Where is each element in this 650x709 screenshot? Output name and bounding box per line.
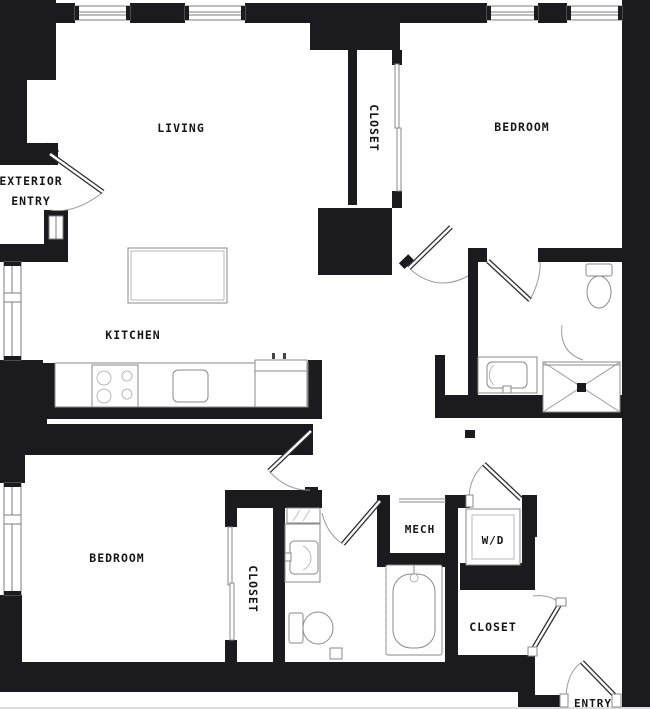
bathroom-bottom-door xyxy=(322,501,380,544)
living-window-2 xyxy=(185,6,245,20)
entry-label: ENTRY xyxy=(574,697,612,709)
mech-label: MECH xyxy=(405,523,436,536)
exterior-entry-label-line2: ENTRY xyxy=(11,194,51,208)
entry-closet-door xyxy=(528,596,566,656)
living-window-1 xyxy=(75,6,130,20)
mech-opening xyxy=(399,499,446,502)
floor-drain xyxy=(330,648,342,659)
kitchen-label: KITCHEN xyxy=(105,328,160,342)
washer-dryer-door xyxy=(466,464,521,507)
walls xyxy=(0,0,650,709)
toilet-bottom xyxy=(289,612,333,644)
shower-door-arc xyxy=(562,325,583,360)
vanity-sink-top xyxy=(478,357,537,393)
kitchen-prep-sink xyxy=(173,370,208,402)
bedroom-bottom-label: BEDROOM xyxy=(89,551,144,565)
kitchen-island xyxy=(128,248,227,303)
closet-entry-label: CLOSET xyxy=(469,620,517,634)
bedroom-side-window xyxy=(4,483,21,595)
kitchen-sink xyxy=(255,353,307,407)
closet-top-sliding-doors xyxy=(395,64,401,191)
bathroom-top-door xyxy=(488,261,540,300)
washer-dryer-label: W/D xyxy=(482,534,505,547)
exterior-entry-label-line1: EXTERIOR xyxy=(0,174,63,188)
floor-plan: LIVING KITCHEN EXTERIOR ENTRY CLOSET BED… xyxy=(0,0,650,709)
shower xyxy=(543,362,620,412)
bedroom-top-door xyxy=(409,227,468,283)
closet-top-label: CLOSET xyxy=(367,104,381,152)
stove xyxy=(92,365,138,407)
bathtub xyxy=(386,565,442,655)
living-label: LIVING xyxy=(157,121,205,135)
bedroom-window-1 xyxy=(487,6,538,20)
bedroom-top-label: BEDROOM xyxy=(494,120,549,134)
toilet-top xyxy=(586,264,612,308)
closet-bottom-sliding-doors xyxy=(228,527,234,640)
mirror-cabinet xyxy=(287,508,320,523)
closet-bottom-label: CLOSET xyxy=(246,565,260,613)
vanity-sink-bottom xyxy=(285,524,320,582)
bedroom-window-2 xyxy=(567,6,622,20)
kitchen-side-window xyxy=(4,262,21,360)
